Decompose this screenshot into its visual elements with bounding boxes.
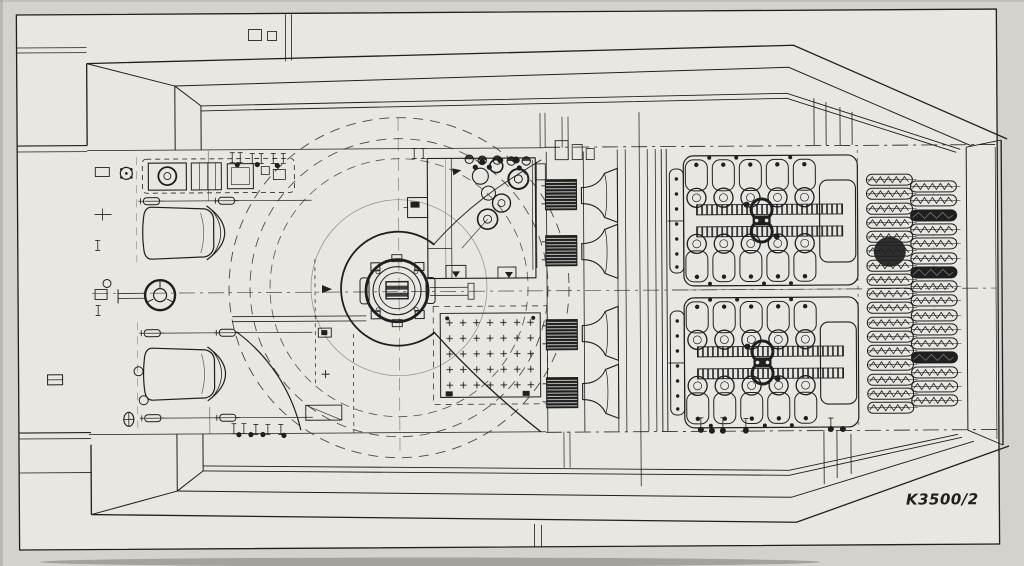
tank-hull-plan-drawing: K3500/2 [0,0,1024,566]
radiator-dark-patch [874,237,906,267]
stowage-rack [433,306,548,405]
scanned-drawing-page: K3500/2 [0,0,1024,566]
drawing-number: K3500/2 [906,490,979,508]
